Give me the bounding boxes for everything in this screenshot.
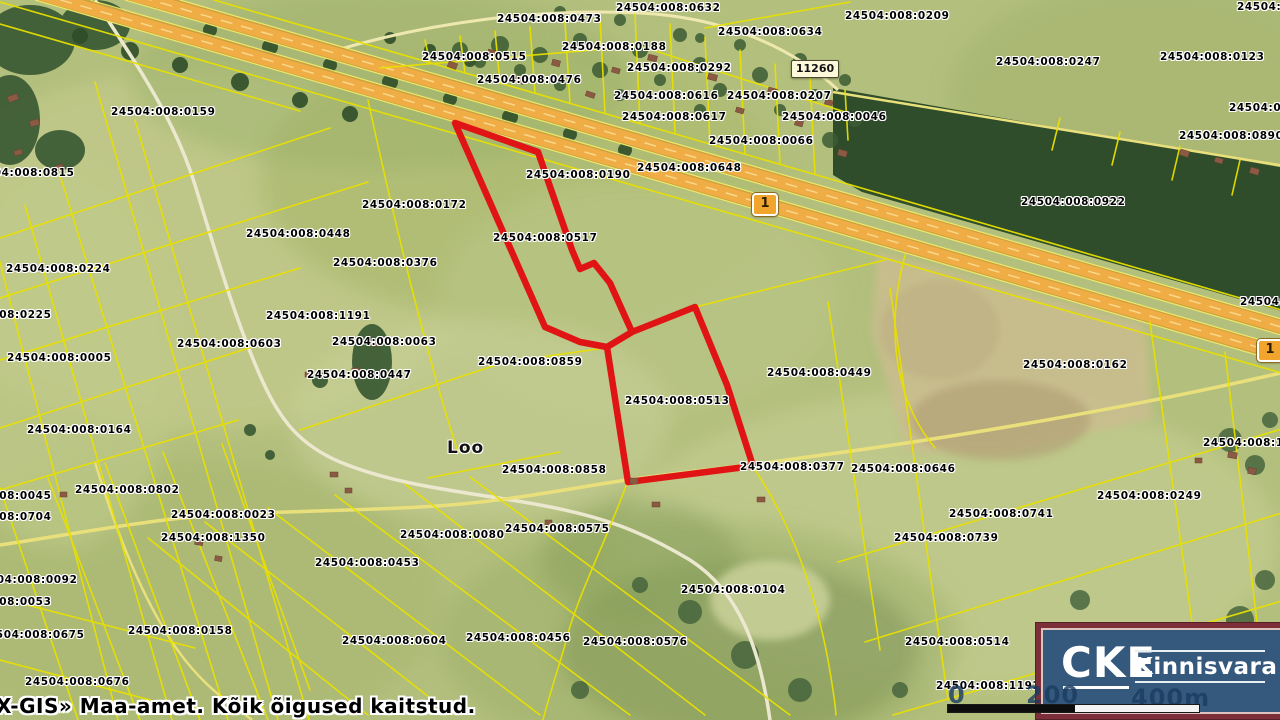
aerial-map-art xyxy=(0,0,1280,720)
scale-bar xyxy=(947,704,1200,713)
place-label: Loo xyxy=(447,438,484,458)
logo-rule-top xyxy=(1135,650,1265,652)
logo-rule-bottom xyxy=(1135,681,1265,683)
attribution-text: X-GIS» Maa-amet. Kõik õigused kaitstud. xyxy=(0,694,476,718)
logo-name: Kinnisvara xyxy=(1135,654,1277,680)
road-badge-1-right: 1 xyxy=(1257,339,1280,362)
scale-bar-black-segment xyxy=(948,705,1075,712)
road-badge-1: 1 xyxy=(752,193,778,216)
map-canvas[interactable]: 24504:008:063224504:008:047324504:008:06… xyxy=(0,0,1280,720)
road-badge-11260: 11260 xyxy=(791,60,839,78)
